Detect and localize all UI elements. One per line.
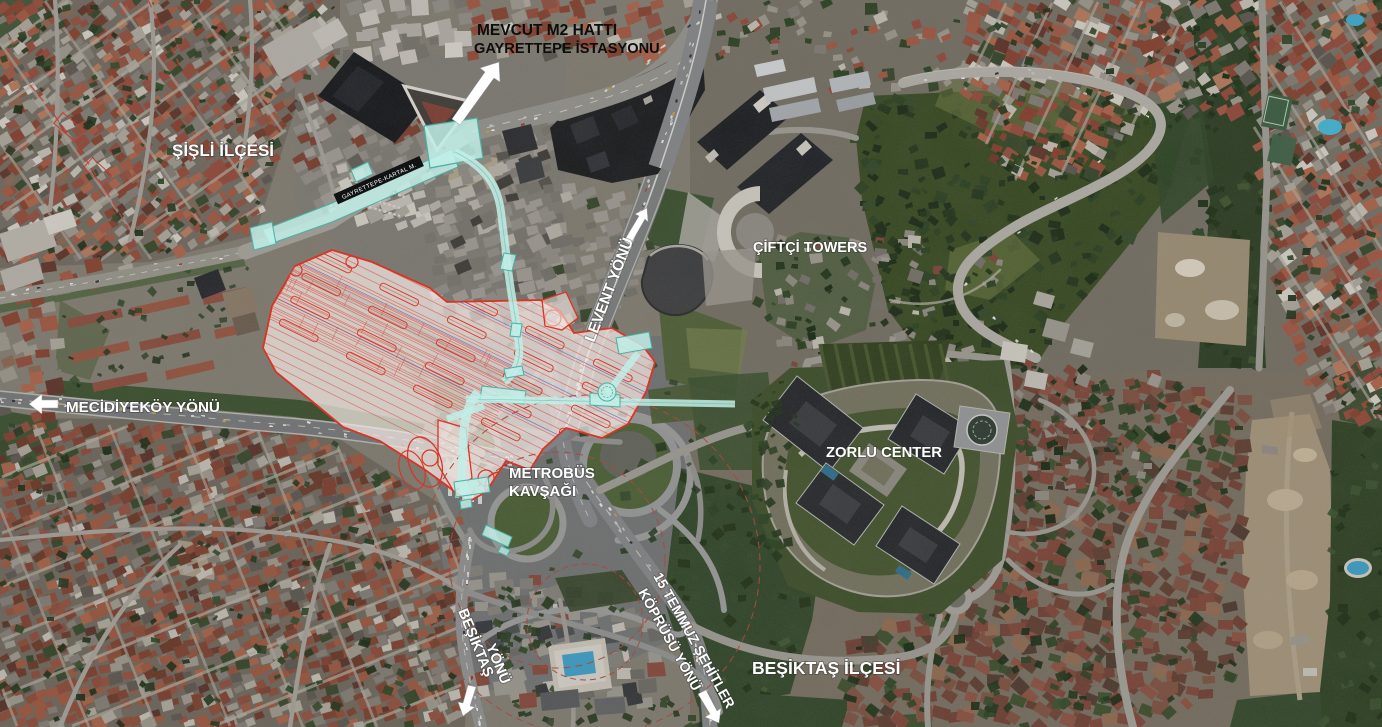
svg-text:ŞİŞLİ İLÇESİ: ŞİŞLİ İLÇESİ <box>172 141 274 160</box>
svg-text:MEVCUT M2 HATTI: MEVCUT M2 HATTI <box>477 22 617 39</box>
svg-text:ÇİFTÇİ TOWERS: ÇİFTÇİ TOWERS <box>753 239 867 256</box>
svg-text:GAYRETTEPE İSTASYONU: GAYRETTEPE İSTASYONU <box>474 40 660 57</box>
svg-text:MECİDİYEKÖY YÖNÜ: MECİDİYEKÖY YÖNÜ <box>66 399 220 416</box>
svg-text:KAVŞAĞI: KAVŞAĞI <box>509 482 576 500</box>
svg-text:BEŞİKTAŞ İLÇESİ: BEŞİKTAŞ İLÇESİ <box>752 658 900 678</box>
svg-text:ZORLU CENTER: ZORLU CENTER <box>826 445 942 461</box>
svg-text:METROBÜS: METROBÜS <box>509 465 595 482</box>
